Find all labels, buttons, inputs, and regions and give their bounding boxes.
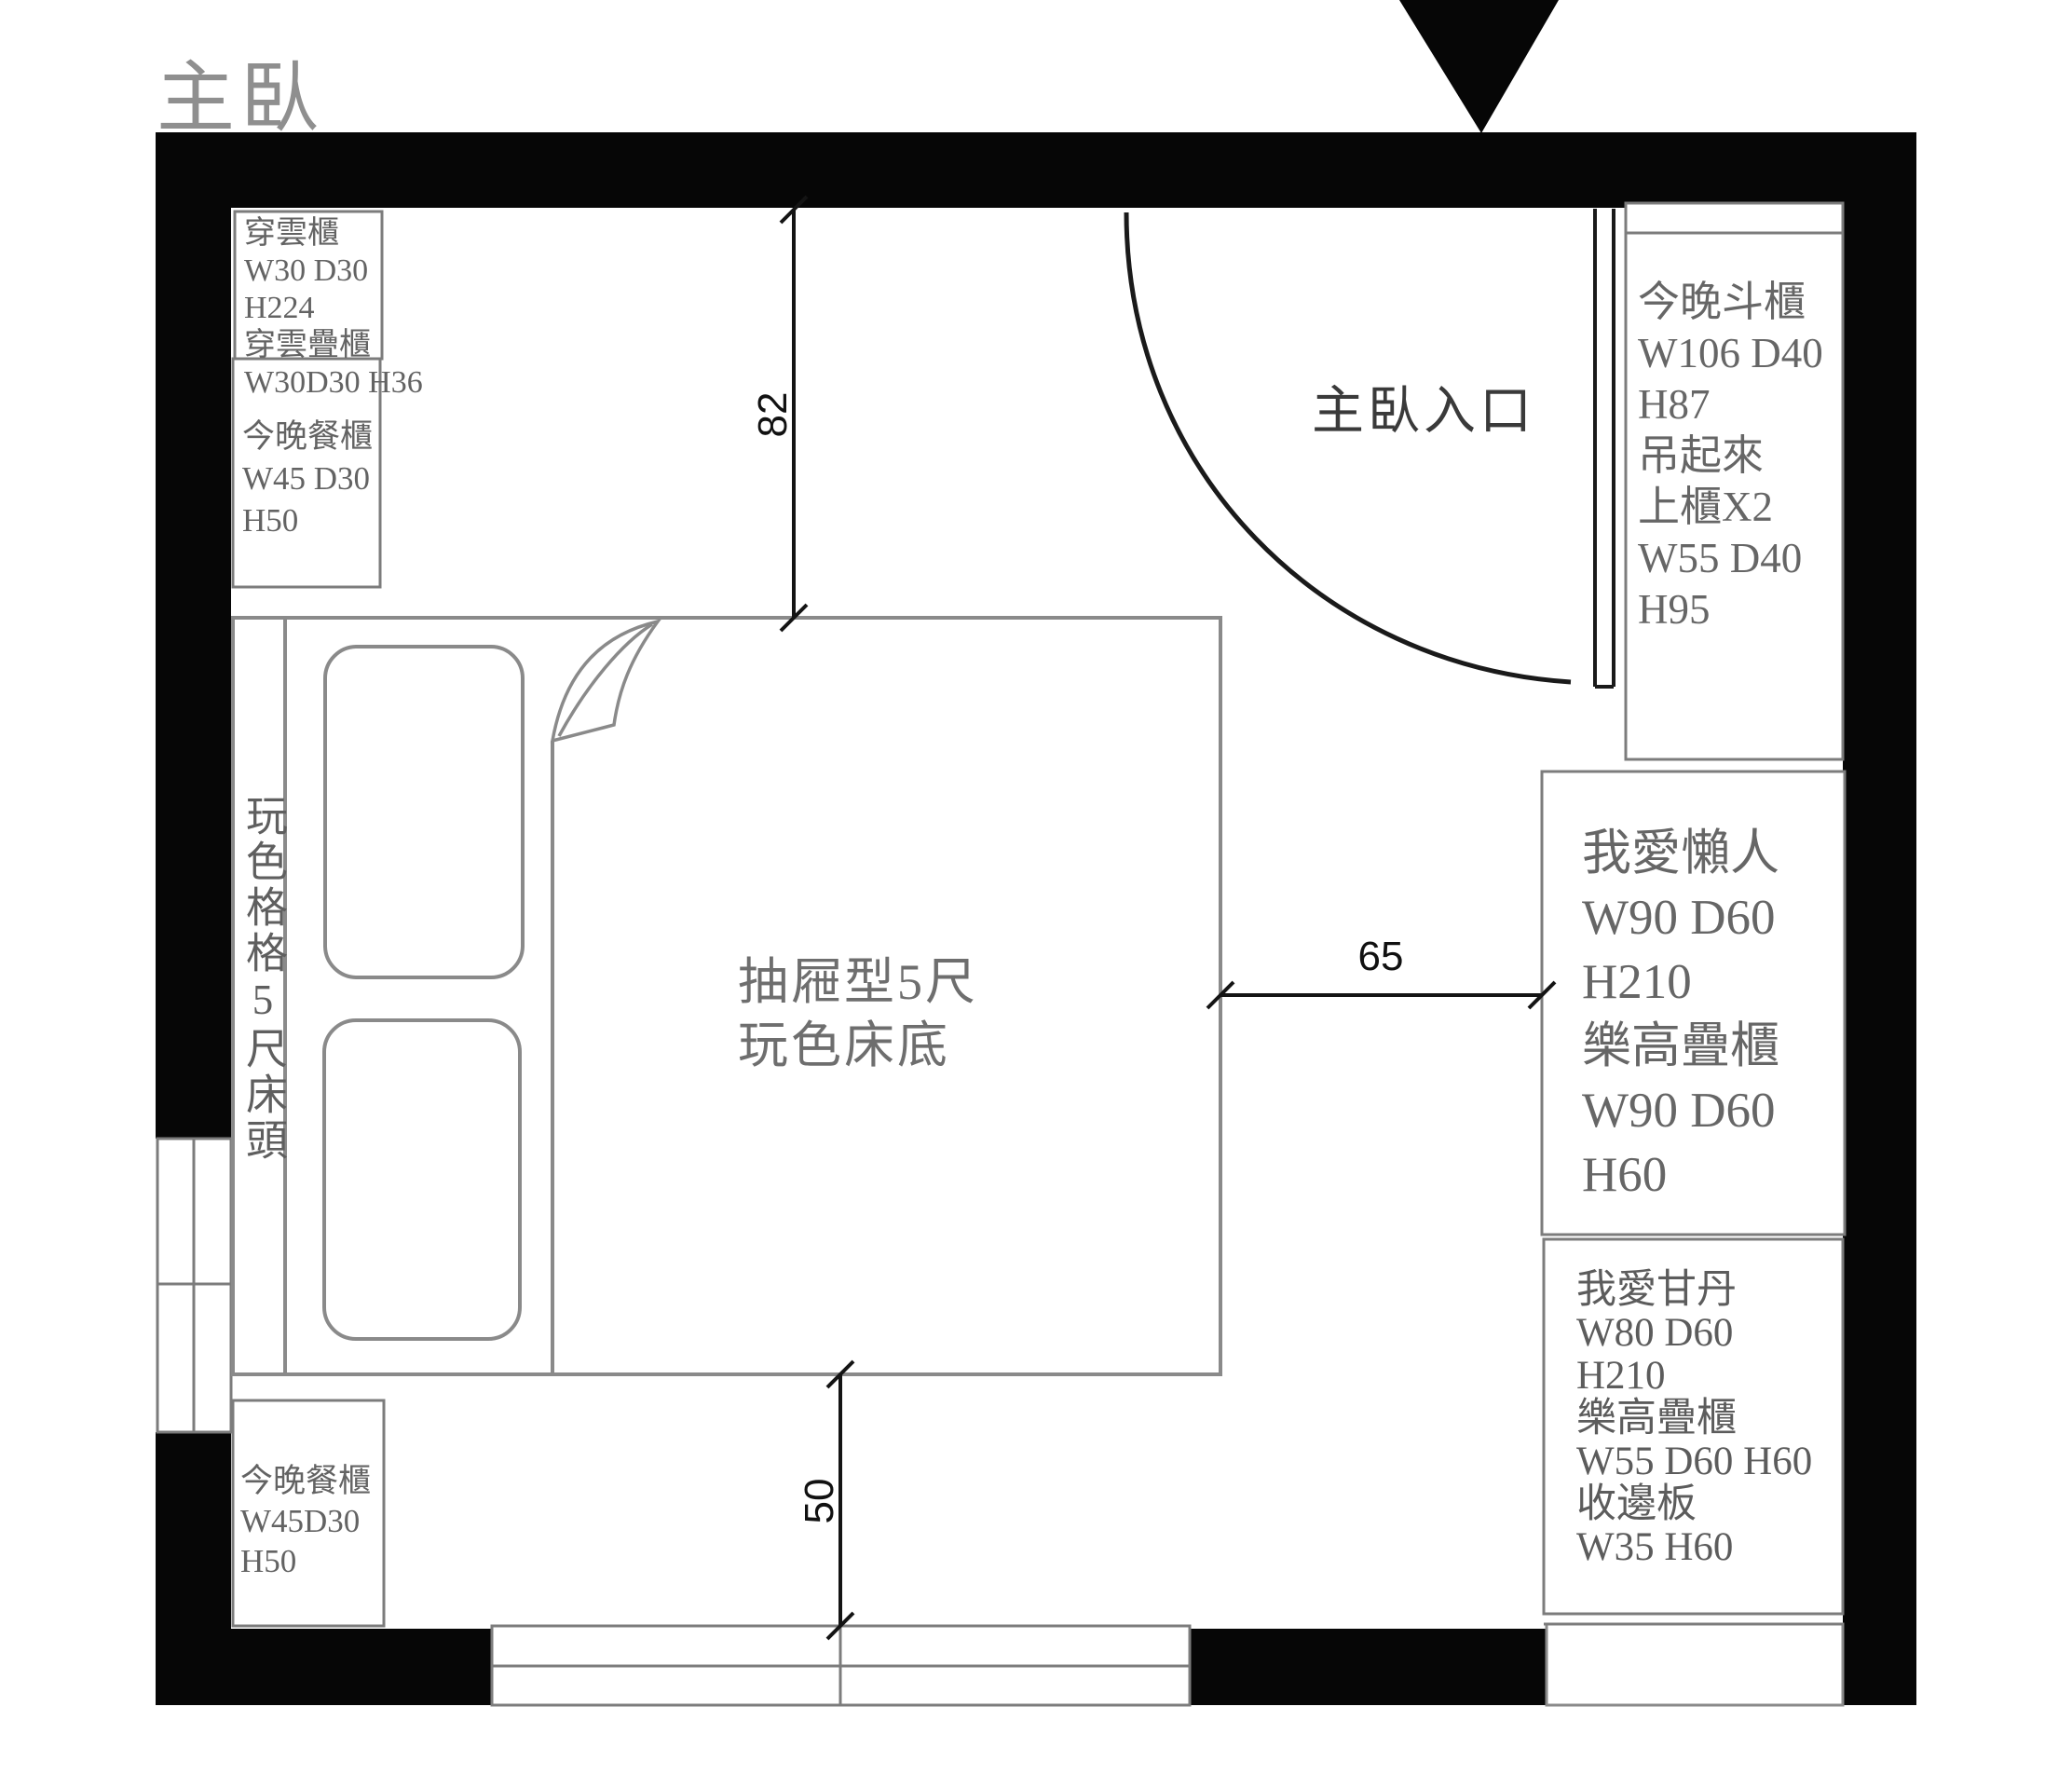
wardrobe-lazy-label: 我愛懶人 W90 D60 H210 樂高疊櫃 W90 D60 H60 — [1582, 822, 1779, 1208]
dim-82-value: 82 — [750, 377, 797, 452]
left-window — [157, 1139, 231, 1432]
door-swing-arc — [1126, 212, 1571, 682]
bed-label: 抽屜型5尺 玩色床底 — [738, 950, 978, 1077]
entrance-pointer-icon — [1399, 0, 1559, 133]
wall-bottom-left-segment — [156, 1629, 492, 1705]
bed — [233, 618, 1220, 1374]
bottom-window — [492, 1626, 1190, 1705]
wall-bottom-mid-segment — [1190, 1629, 1548, 1705]
door-leaf — [1595, 209, 1614, 687]
cabinet-bottom-left-label: 今晚餐櫃 W45D30 H50 — [240, 1461, 371, 1581]
dim-65-line — [1207, 982, 1555, 1008]
bed-outline — [233, 618, 1220, 1374]
entrance-label: 主臥入口 — [1312, 369, 1535, 444]
cabinet-top-left-lower-label: 今晚餐櫃 W45 D30 H50 — [242, 416, 373, 541]
wall-left-upper — [156, 132, 231, 1139]
wardrobe-gandan-label: 我愛甘丹 W80 D60 H210 樂高疊櫃 W55 D60 H60 收邊板 W… — [1576, 1269, 1812, 1569]
page-title: 主臥 — [157, 35, 324, 148]
dim-50-value: 50 — [797, 1464, 843, 1538]
chest-right-label: 今晚斗櫃 W106 D40 H87 吊起來 上櫃X2 W55 D40 H95 — [1638, 277, 1823, 635]
door — [1126, 209, 1614, 687]
dim-65-value: 65 — [1343, 934, 1418, 980]
wall-right — [1843, 132, 1916, 1705]
bottom-right-opening — [1547, 1624, 1843, 1705]
floorplan-master-bedroom: 主臥 主臥入口 穿雲櫃 W30 D30 H224 穿雲疊櫃 W30D30 H36… — [0, 0, 2072, 1775]
headboard-label: 玩色格格5尺床頭 — [233, 794, 293, 1164]
wall-top — [156, 132, 1916, 208]
cabinet-top-left-upper-label: 穿雲櫃 W30 D30 H224 穿雲疊櫃 W30D30 H36 — [244, 215, 423, 402]
